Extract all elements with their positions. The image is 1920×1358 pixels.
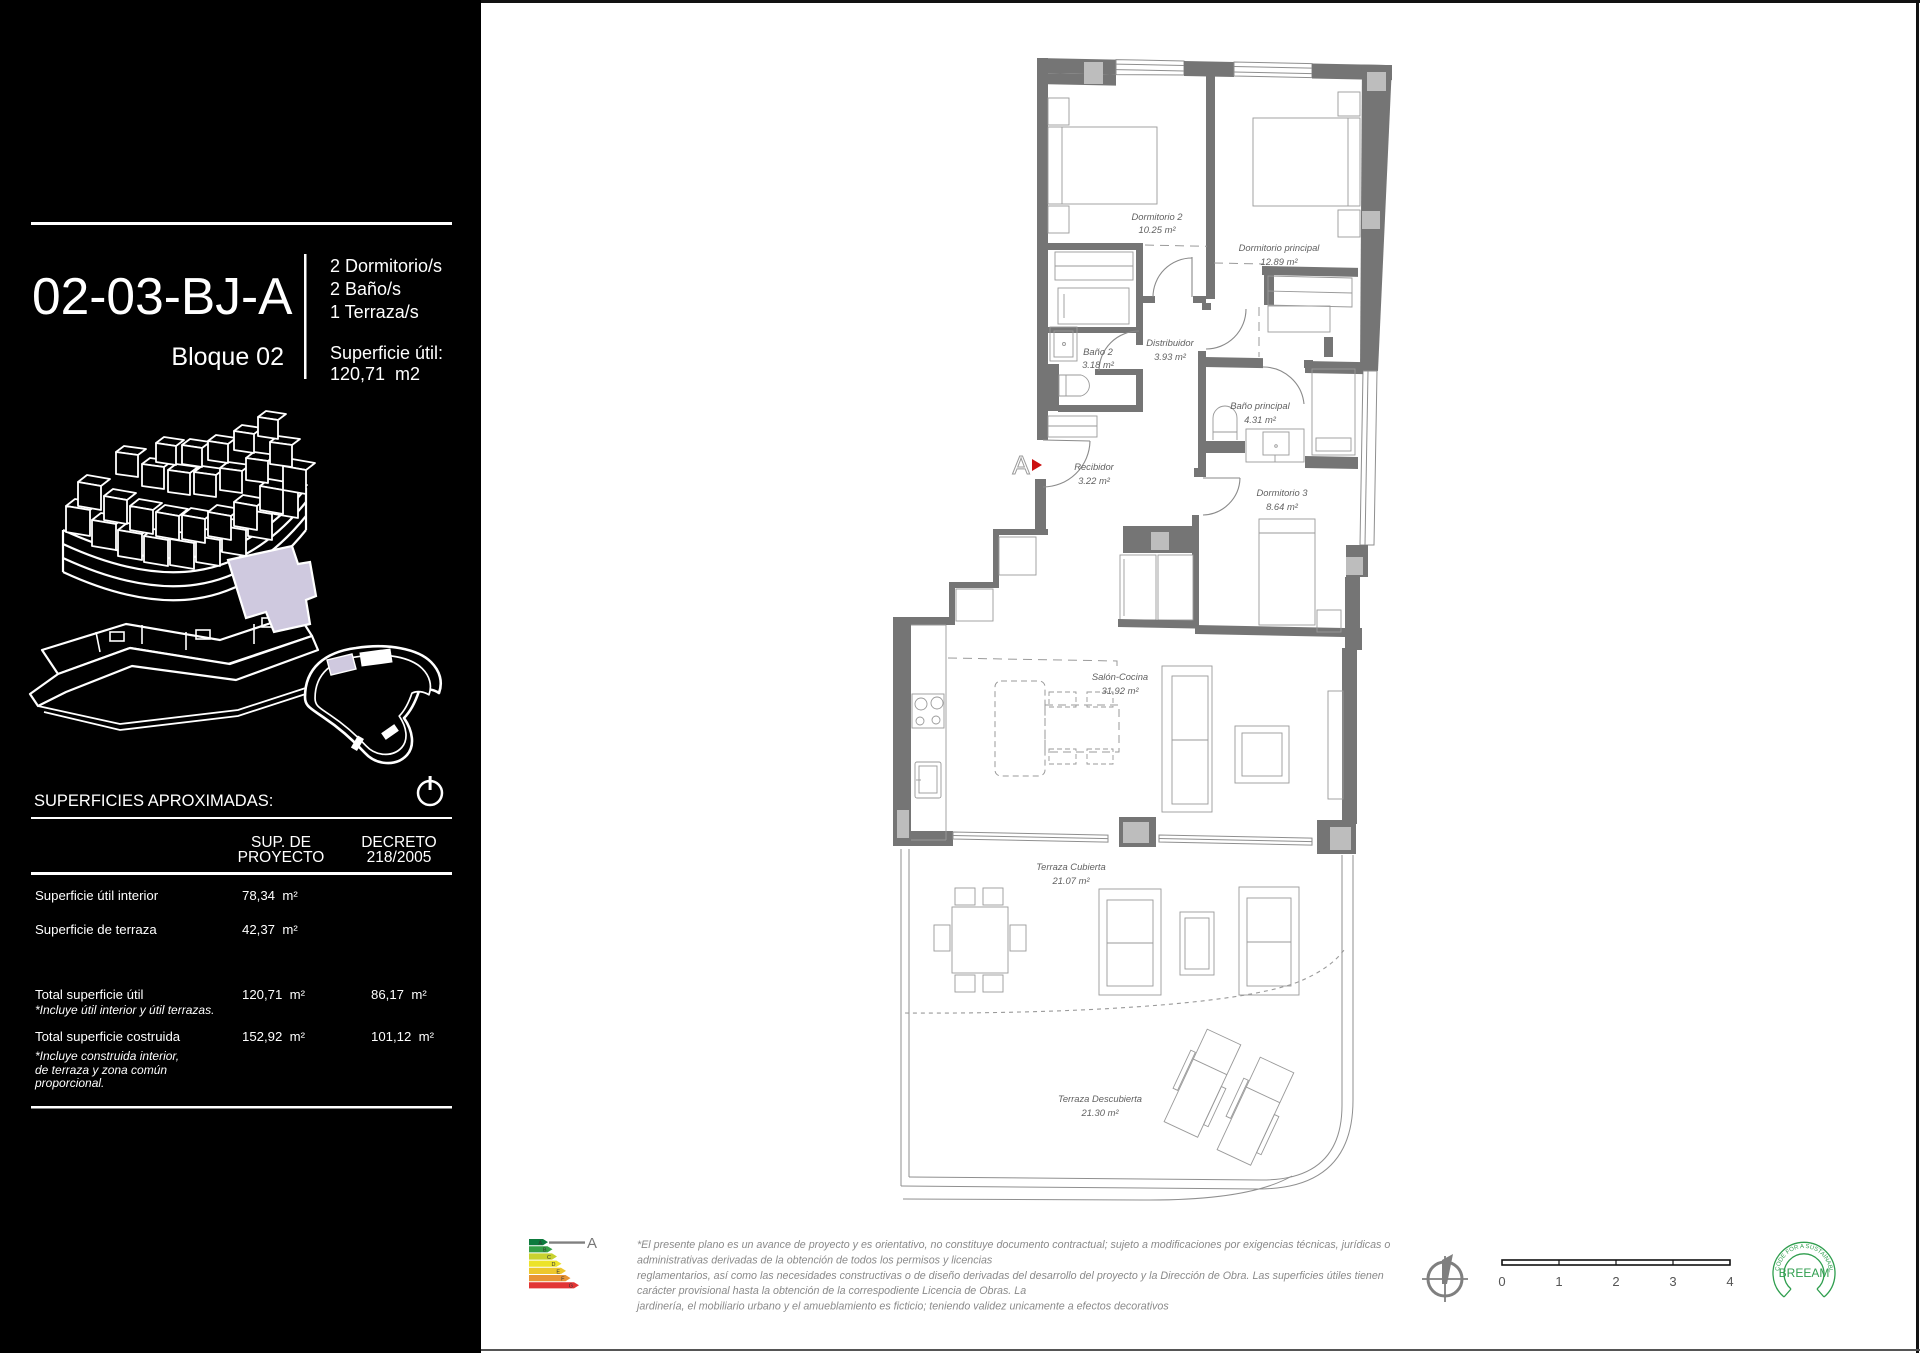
svg-text:C: C	[547, 1255, 551, 1261]
svg-text:*Incluye construida interior,: *Incluye construida interior,	[35, 1049, 179, 1063]
svg-text:120,71 m2: 120,71 m2	[330, 364, 420, 384]
svg-text:Superficie útil:: Superficie útil:	[330, 343, 443, 363]
svg-text:PROYECTO: PROYECTO	[238, 849, 325, 866]
svg-text:Recibidor: Recibidor	[1074, 461, 1114, 472]
svg-text:4: 4	[1726, 1274, 1733, 1289]
svg-text:Total superficie útil: Total superficie útil	[35, 987, 144, 1002]
svg-text:Baño principal: Baño principal	[1230, 400, 1290, 411]
svg-text:Distribuidor: Distribuidor	[1146, 337, 1194, 348]
svg-text:2: 2	[1612, 1274, 1619, 1289]
svg-text:3: 3	[1669, 1274, 1676, 1289]
svg-text:21.07 m²: 21.07 m²	[1052, 875, 1091, 886]
svg-text:Total superficie costruida: Total superficie costruida	[35, 1029, 181, 1044]
svg-text:10.25 m²: 10.25 m²	[1139, 224, 1177, 235]
svg-text:Superficie de terraza: Superficie de terraza	[35, 922, 157, 937]
svg-text:3.22 m²: 3.22 m²	[1078, 475, 1111, 486]
svg-text:218/2005: 218/2005	[367, 849, 432, 866]
svg-text:8.64 m²: 8.64 m²	[1266, 501, 1299, 512]
svg-text:Dormitorio 3: Dormitorio 3	[1256, 487, 1308, 498]
svg-text:101,12 m²: 101,12 m²	[371, 1029, 435, 1044]
svg-text:12.89 m²: 12.89 m²	[1261, 256, 1299, 267]
svg-text:86,17 m²: 86,17 m²	[371, 987, 427, 1002]
svg-text:152,92 m²: 152,92 m²	[242, 1029, 306, 1044]
svg-text:0: 0	[1498, 1274, 1505, 1289]
svg-text:1: 1	[1555, 1274, 1562, 1289]
svg-text:Salón-Cocina: Salón-Cocina	[1092, 671, 1148, 682]
svg-text:Superficie útil interior: Superficie útil interior	[35, 888, 159, 903]
svg-text:A: A	[538, 1241, 542, 1247]
svg-text:21.30 m²: 21.30 m²	[1081, 1107, 1120, 1118]
svg-text:4.31 m²: 4.31 m²	[1244, 414, 1277, 425]
svg-text:31.92 m²: 31.92 m²	[1102, 685, 1140, 696]
svg-text:Dormitorio principal: Dormitorio principal	[1239, 242, 1321, 253]
svg-text:120,71 m²: 120,71 m²	[242, 987, 306, 1002]
svg-text:Bloque 02: Bloque 02	[171, 343, 284, 371]
svg-text:78,34 m²: 78,34 m²	[242, 888, 298, 903]
svg-text:administrativas derivadas de l: administrativas derivadas de la obtenció…	[637, 1254, 993, 1266]
svg-text:BREEAM: BREEAM	[1779, 1266, 1830, 1280]
svg-text:jardinería, el mobiliario urba: jardinería, el mobiliario urbano y el am…	[635, 1301, 1169, 1313]
svg-text:Baño 2: Baño 2	[1083, 346, 1113, 357]
svg-text:de terraza y zona común: de terraza y zona común	[35, 1063, 167, 1077]
svg-text:carácter provisional hasta la: carácter provisional hasta la obtención …	[637, 1285, 1026, 1297]
svg-text:Dormitorio 2: Dormitorio 2	[1131, 211, 1183, 222]
svg-text:2 Dormitorio/s: 2 Dormitorio/s	[330, 256, 442, 276]
svg-text:Terraza Cubierta: Terraza Cubierta	[1036, 861, 1105, 872]
svg-text:2 Baño/s: 2 Baño/s	[330, 279, 401, 299]
svg-text:B: B	[543, 1248, 547, 1254]
svg-text:*Incluye útil interior y útil: *Incluye útil interior y útil terrazas.	[35, 1003, 214, 1017]
svg-text:D: D	[552, 1262, 556, 1268]
svg-text:A: A	[1012, 450, 1030, 480]
svg-text:3.18 m²: 3.18 m²	[1082, 359, 1115, 370]
svg-text:SUPERFICIES APROXIMADAS:: SUPERFICIES APROXIMADAS:	[34, 792, 273, 810]
svg-text:02-03-BJ-A: 02-03-BJ-A	[32, 267, 293, 325]
svg-text:*El presente plano es un avanc: *El presente plano es un avance de proye…	[637, 1239, 1390, 1251]
svg-text:A: A	[587, 1235, 597, 1252]
svg-text:reglamentarios, así como las n: reglamentarios, así como las necesidades…	[637, 1270, 1384, 1282]
svg-text:proporcional.: proporcional.	[34, 1076, 104, 1090]
svg-text:1 Terraza/s: 1 Terraza/s	[330, 302, 419, 322]
svg-text:E: E	[556, 1269, 560, 1275]
svg-text:3.93 m²: 3.93 m²	[1154, 351, 1187, 362]
svg-text:Terraza Descubierta: Terraza Descubierta	[1058, 1093, 1142, 1104]
svg-text:G: G	[569, 1284, 573, 1290]
svg-text:42,37 m²: 42,37 m²	[242, 922, 298, 937]
